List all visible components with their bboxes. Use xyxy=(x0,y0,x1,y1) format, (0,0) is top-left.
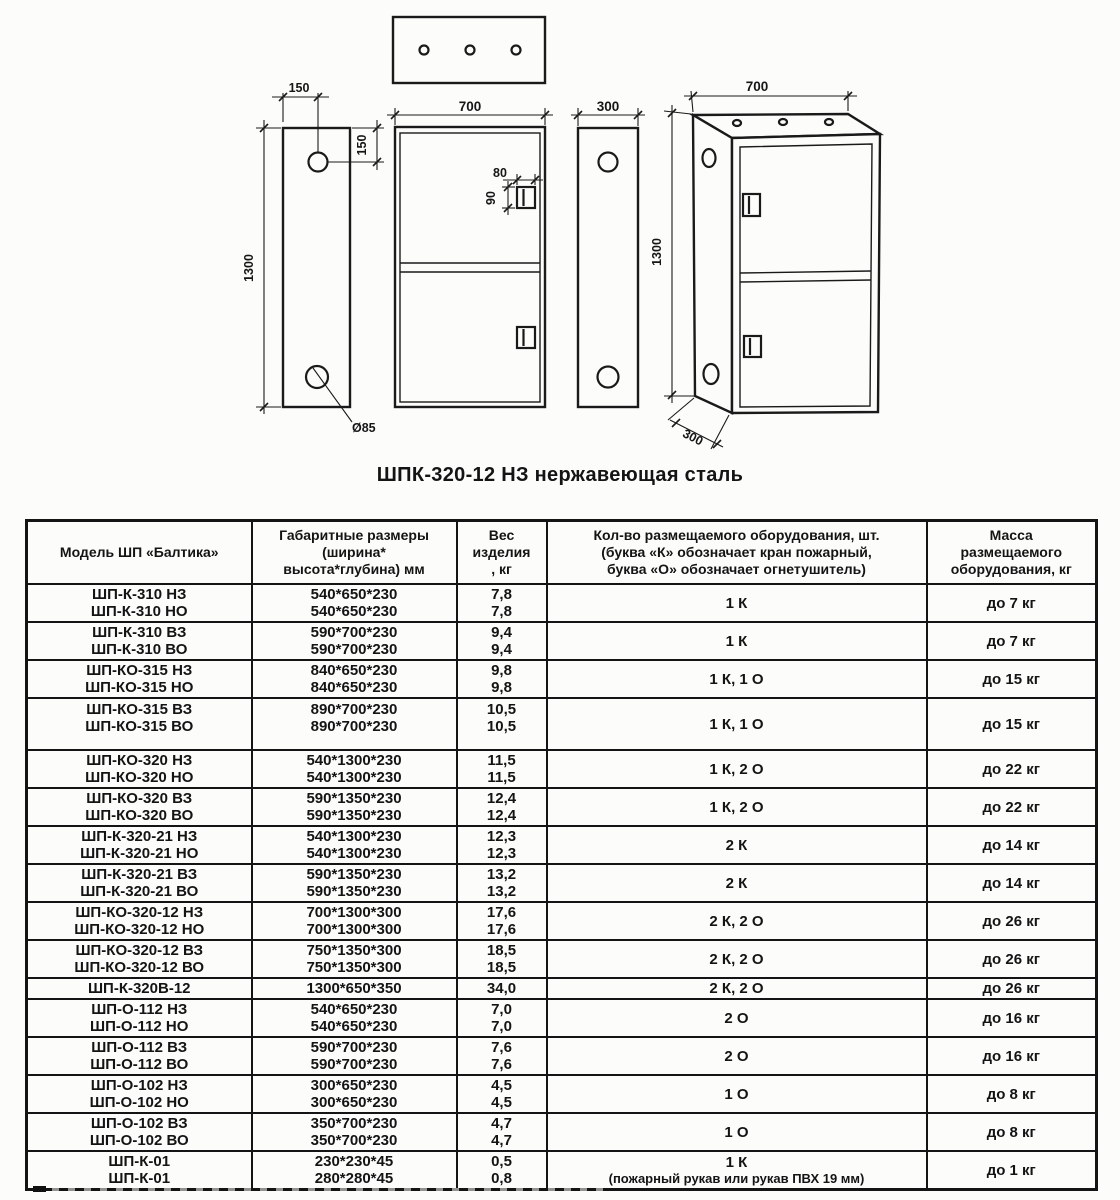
weight-value: 4,5 xyxy=(460,1077,544,1094)
c-size-cell: 890*700*230890*700*230 xyxy=(252,698,457,750)
model-name: ШП-КО-315 ВЗ xyxy=(30,701,249,718)
mass-value: до 26 кг xyxy=(930,951,1094,968)
size-value: 540*1300*230 xyxy=(255,845,454,862)
c-mass-cell: до 22 кг xyxy=(927,750,1097,788)
equipment-count: 1 К xyxy=(550,633,924,650)
c-equip-cell: 2 К, 2 О xyxy=(547,902,927,940)
size-value: 590*700*230 xyxy=(255,641,454,658)
weight-value: 10,5 xyxy=(460,701,544,718)
model-name: ШП-К-320-21 ВЗ xyxy=(30,866,249,883)
dim-side-depth: 300 xyxy=(597,99,620,114)
weight-value: 13,2 xyxy=(460,883,544,900)
model-name: ШП-КО-320-12 ВЗ xyxy=(30,942,249,959)
model-name: ШП-О-102 НЗ xyxy=(30,1077,249,1094)
c-model-cell: ШП-К-310 НЗШП-К-310 НО xyxy=(27,584,252,622)
model-name: ШП-О-112 ВЗ xyxy=(30,1039,249,1056)
size-value: 890*700*230 xyxy=(255,701,454,718)
size-value: 300*650*230 xyxy=(255,1094,454,1111)
weight-value: 12,4 xyxy=(460,807,544,824)
side-outline xyxy=(578,128,638,407)
mass-value: до 14 кг xyxy=(930,875,1094,892)
size-value: 590*700*230 xyxy=(255,624,454,641)
model-name: ШП-К-320В-12 xyxy=(30,980,249,997)
size-value: 590*1350*230 xyxy=(255,790,454,807)
equipment-count: 2 К xyxy=(550,875,924,892)
dim-iso-height: 1300 xyxy=(650,238,664,266)
model-name: ШП-К-320-21 НЗ xyxy=(30,828,249,845)
c-size-cell: 700*1300*300700*1300*300 xyxy=(252,902,457,940)
c-mass-cell: до 1 кг xyxy=(927,1151,1097,1190)
table-header-row: Модель ШП «Балтика» Габаритные размеры (… xyxy=(27,521,1097,585)
c-model-cell: ШП-КО-320-12 НЗШП-КО-320-12 НО xyxy=(27,902,252,940)
header-model: Модель ШП «Балтика» xyxy=(27,521,252,585)
c-mass-cell: до 15 кг xyxy=(927,698,1097,750)
size-value: 540*650*230 xyxy=(255,1001,454,1018)
c-mass-cell: до 15 кг xyxy=(927,660,1097,698)
c-mass-cell: до 7 кг xyxy=(927,584,1097,622)
weight-value: 7,0 xyxy=(460,1018,544,1035)
mass-value: до 8 кг xyxy=(930,1086,1094,1103)
equipment-count: 1 К, 2 О xyxy=(550,799,924,816)
size-value: 700*1300*300 xyxy=(255,904,454,921)
table-row: ШП-КО-315 ВЗШП-КО-315 ВО890*700*230890*7… xyxy=(27,698,1097,750)
model-name: ШП-О-102 НО xyxy=(30,1094,249,1111)
table-row: ШП-К-320-21 НЗШП-К-320-21 НО540*1300*230… xyxy=(27,826,1097,864)
mass-value: до 14 кг xyxy=(930,837,1094,854)
model-name: ШП-К-310 ВЗ xyxy=(30,624,249,641)
dim-iso-depth: 300 xyxy=(680,426,705,448)
c-size-cell: 540*1300*230540*1300*230 xyxy=(252,826,457,864)
dim-front-width: 700 xyxy=(459,99,482,114)
size-value: 590*1350*230 xyxy=(255,883,454,900)
iso-left-face xyxy=(693,115,732,413)
mass-value: до 22 кг xyxy=(930,799,1094,816)
c-size-cell: 590*1350*230590*1350*230 xyxy=(252,788,457,826)
weight-value: 11,5 xyxy=(460,769,544,786)
size-value: 350*700*230 xyxy=(255,1115,454,1132)
c-weight-cell: 10,510,5 xyxy=(457,698,547,750)
c-size-cell: 540*1300*230540*1300*230 xyxy=(252,750,457,788)
equipment-count: 2 К xyxy=(550,837,924,854)
c-size-cell: 350*700*230350*700*230 xyxy=(252,1113,457,1151)
model-name: ШП-О-102 ВЗ xyxy=(30,1115,249,1132)
equipment-count: 1 К, 1 О xyxy=(550,671,924,688)
c-weight-cell: 0,50,8 xyxy=(457,1151,547,1190)
left-panel-view: 150 150 1300 Ø85 xyxy=(242,81,384,435)
model-name: ШП-КО-315 НЗ xyxy=(30,662,249,679)
table-row: ШП-О-102 ВЗШП-О-102 ВО350*700*230350*700… xyxy=(27,1113,1097,1151)
c-model-cell: ШП-К-310 ВЗШП-К-310 ВО xyxy=(27,622,252,660)
size-value: 590*1350*230 xyxy=(255,866,454,883)
header-equipment: Кол-во размещаемого оборудования, шт. (б… xyxy=(547,521,927,585)
c-model-cell: ШП-КО-320 НЗШП-КО-320 НО xyxy=(27,750,252,788)
c-equip-cell: 2 К xyxy=(547,864,927,902)
c-weight-cell: 9,49,4 xyxy=(457,622,547,660)
c-size-cell: 300*650*230300*650*230 xyxy=(252,1075,457,1113)
equipment-count: 2 К, 2 О xyxy=(550,951,924,968)
model-name: ШП-К-320-21 НО xyxy=(30,845,249,862)
size-value: 350*700*230 xyxy=(255,1132,454,1149)
weight-value: 13,2 xyxy=(460,866,544,883)
weight-value: 7,8 xyxy=(460,603,544,620)
spec-table-body: ШП-К-310 НЗШП-К-310 НО540*650*230540*650… xyxy=(27,584,1097,1190)
c-size-cell: 840*650*230840*650*230 xyxy=(252,660,457,698)
mass-value: до 16 кг xyxy=(930,1048,1094,1065)
c-size-cell: 590*700*230590*700*230 xyxy=(252,1037,457,1075)
model-name: ШП-К-01 xyxy=(30,1170,249,1187)
weight-value: 18,5 xyxy=(460,942,544,959)
weight-value: 0,8 xyxy=(460,1170,544,1187)
dim-panel-width: 150 xyxy=(289,81,310,95)
weight-value: 4,5 xyxy=(460,1094,544,1111)
weight-value: 0,5 xyxy=(460,1153,544,1170)
c-model-cell: ШП-КО-320-12 ВЗШП-КО-320-12 ВО xyxy=(27,940,252,978)
model-name: ШП-КО-320-12 ВО xyxy=(30,959,249,976)
size-value: 540*650*230 xyxy=(255,586,454,603)
weight-value: 7,6 xyxy=(460,1039,544,1056)
header-weight: Вес изделия , кг xyxy=(457,521,547,585)
c-mass-cell: до 14 кг xyxy=(927,864,1097,902)
c-mass-cell: до 26 кг xyxy=(927,978,1097,999)
c-weight-cell: 7,87,8 xyxy=(457,584,547,622)
equipment-count: 2 К, 2 О xyxy=(550,980,924,997)
equipment-count: 1 О xyxy=(550,1124,924,1141)
table-row: ШП-О-112 НЗШП-О-112 НО540*650*230540*650… xyxy=(27,999,1097,1037)
cabinet-outline xyxy=(395,127,545,407)
c-size-cell: 590*700*230590*700*230 xyxy=(252,622,457,660)
c-equip-cell: 2 К xyxy=(547,826,927,864)
side-view: 300 xyxy=(571,99,645,407)
equipment-count: 2 О xyxy=(550,1048,924,1065)
c-equip-cell: 1 К, 1 О xyxy=(547,698,927,750)
c-mass-cell: до 8 кг xyxy=(927,1075,1097,1113)
c-model-cell: ШП-О-112 НЗШП-О-112 НО xyxy=(27,999,252,1037)
c-size-cell: 540*650*230540*650*230 xyxy=(252,584,457,622)
table-row: ШП-КО-320 НЗШП-КО-320 НО540*1300*230540*… xyxy=(27,750,1097,788)
spec-table: Модель ШП «Балтика» Габаритные размеры (… xyxy=(25,519,1098,1191)
size-value: 700*1300*300 xyxy=(255,921,454,938)
c-mass-cell: до 16 кг xyxy=(927,1037,1097,1075)
c-weight-cell: 18,518,5 xyxy=(457,940,547,978)
size-value: 540*650*230 xyxy=(255,603,454,620)
c-mass-cell: до 26 кг xyxy=(927,902,1097,940)
technical-drawing: 150 150 1300 Ø85 xyxy=(0,0,1120,505)
size-value: 840*650*230 xyxy=(255,662,454,679)
model-name: ШП-КО-315 ВО xyxy=(30,718,249,735)
weight-value: 9,4 xyxy=(460,624,544,641)
c-equip-cell: 1 К(пожарный рукав или рукав ПВХ 19 мм) xyxy=(547,1151,927,1190)
c-weight-cell: 34,0 xyxy=(457,978,547,999)
c-equip-cell: 2 К, 2 О xyxy=(547,940,927,978)
c-weight-cell: 4,74,7 xyxy=(457,1113,547,1151)
c-model-cell: ШП-К-01ШП-К-01 xyxy=(27,1151,252,1190)
weight-value: 12,4 xyxy=(460,790,544,807)
c-model-cell: ШП-О-112 ВЗШП-О-112 ВО xyxy=(27,1037,252,1075)
equipment-count: 2 О xyxy=(550,1010,924,1027)
mass-value: до 22 кг xyxy=(930,761,1094,778)
c-model-cell: ШП-К-320В-12 xyxy=(27,978,252,999)
size-value: 540*1300*230 xyxy=(255,828,454,845)
model-name: ШП-О-112 НО xyxy=(30,1018,249,1035)
model-name: ШП-КО-320 НО xyxy=(30,769,249,786)
model-name: ШП-К-01 xyxy=(30,1153,249,1170)
model-name: ШП-К-310 ВО xyxy=(30,641,249,658)
model-name: ШП-КО-320 ВЗ xyxy=(30,790,249,807)
weight-value: 9,8 xyxy=(460,662,544,679)
table-row: ШП-К-320-21 ВЗШП-К-320-21 ВО590*1350*230… xyxy=(27,864,1097,902)
plan-outline xyxy=(393,17,545,83)
model-name: ШП-КО-320 ВО xyxy=(30,807,249,824)
model-name: ШП-КО-320-12 НЗ xyxy=(30,904,249,921)
c-mass-cell: до 7 кг xyxy=(927,622,1097,660)
size-value: 590*700*230 xyxy=(255,1056,454,1073)
model-name: ШП-КО-320-12 НО xyxy=(30,921,249,938)
c-mass-cell: до 22 кг xyxy=(927,788,1097,826)
mass-value: до 26 кг xyxy=(930,980,1094,997)
c-size-cell: 230*230*45280*280*45 xyxy=(252,1151,457,1190)
c-model-cell: ШП-О-102 НЗШП-О-102 НО xyxy=(27,1075,252,1113)
size-value: 590*1350*230 xyxy=(255,807,454,824)
weight-value: 17,6 xyxy=(460,921,544,938)
table-row: ШП-О-112 ВЗШП-О-112 ВО590*700*230590*700… xyxy=(27,1037,1097,1075)
c-equip-cell: 1 К, 2 О xyxy=(547,788,927,826)
mass-value: до 15 кг xyxy=(930,671,1094,688)
c-equip-cell: 2 О xyxy=(547,1037,927,1075)
weight-value: 17,6 xyxy=(460,904,544,921)
table-row: ШП-К-320В-121300*650*35034,02 К, 2 Одо 2… xyxy=(27,978,1097,999)
header-equipment-mass: Масса размещаемого оборудования, кг xyxy=(927,521,1097,585)
c-mass-cell: до 26 кг xyxy=(927,940,1097,978)
mass-value: до 26 кг xyxy=(930,913,1094,930)
table-row: ШП-К-310 НЗШП-К-310 НО540*650*230540*650… xyxy=(27,584,1097,622)
c-equip-cell: 1 О xyxy=(547,1075,927,1113)
size-value: 750*1350*300 xyxy=(255,942,454,959)
c-model-cell: ШП-КО-315 ВЗШП-КО-315 ВО xyxy=(27,698,252,750)
c-equip-cell: 2 К, 2 О xyxy=(547,978,927,999)
model-name: ШП-О-102 ВО xyxy=(30,1132,249,1149)
c-equip-cell: 1 К, 1 О xyxy=(547,660,927,698)
weight-value: 12,3 xyxy=(460,845,544,862)
c-mass-cell: до 8 кг xyxy=(927,1113,1097,1151)
mass-value: до 15 кг xyxy=(930,716,1094,733)
table-row: ШП-КО-320 ВЗШП-КО-320 ВО590*1350*230590*… xyxy=(27,788,1097,826)
model-name: ШП-К-310 НО xyxy=(30,603,249,620)
c-model-cell: ШП-КО-320 ВЗШП-КО-320 ВО xyxy=(27,788,252,826)
c-weight-cell: 7,67,6 xyxy=(457,1037,547,1075)
weight-value: 7,8 xyxy=(460,586,544,603)
c-model-cell: ШП-О-102 ВЗШП-О-102 ВО xyxy=(27,1113,252,1151)
header-dimensions: Габаритные размеры (ширина* высота*глуби… xyxy=(252,521,457,585)
weight-value: 11,5 xyxy=(460,752,544,769)
c-mass-cell: до 14 кг xyxy=(927,826,1097,864)
dim-panel-height: 1300 xyxy=(242,254,256,282)
c-weight-cell: 12,412,4 xyxy=(457,788,547,826)
c-weight-cell: 9,89,8 xyxy=(457,660,547,698)
equipment-count: 1 К, 2 О xyxy=(550,761,924,778)
size-value: 540*1300*230 xyxy=(255,769,454,786)
c-size-cell: 1300*650*350 xyxy=(252,978,457,999)
c-weight-cell: 17,617,6 xyxy=(457,902,547,940)
table-row: ШП-КО-320-12 НЗШП-КО-320-12 НО700*1300*3… xyxy=(27,902,1097,940)
c-weight-cell: 11,511,5 xyxy=(457,750,547,788)
weight-value: 7,0 xyxy=(460,1001,544,1018)
size-value: 840*650*230 xyxy=(255,679,454,696)
weight-value: 9,8 xyxy=(460,679,544,696)
drawing-caption: ШПК-320-12 НЗ нержавеющая сталь xyxy=(0,464,1120,487)
weight-value: 4,7 xyxy=(460,1115,544,1132)
equipment-count: 1 К, 1 О xyxy=(550,716,924,733)
c-equip-cell: 1 К, 2 О xyxy=(547,750,927,788)
c-mass-cell: до 16 кг xyxy=(927,999,1097,1037)
c-model-cell: ШП-КО-315 НЗШП-КО-315 НО xyxy=(27,660,252,698)
size-value: 540*1300*230 xyxy=(255,752,454,769)
table-row: ШП-КО-315 НЗШП-КО-315 НО840*650*230840*6… xyxy=(27,660,1097,698)
model-name: ШП-О-112 НЗ xyxy=(30,1001,249,1018)
c-equip-cell: 1 К xyxy=(547,622,927,660)
c-equip-cell: 1 О xyxy=(547,1113,927,1151)
c-size-cell: 590*1350*230590*1350*230 xyxy=(252,864,457,902)
weight-value: 7,6 xyxy=(460,1056,544,1073)
model-name: ШП-КО-315 НО xyxy=(30,679,249,696)
c-model-cell: ШП-К-320-21 ВЗШП-К-320-21 ВО xyxy=(27,864,252,902)
equipment-count: 1 К xyxy=(550,595,924,612)
cutoff-text-fragment xyxy=(33,1186,46,1192)
model-name: ШП-К-310 НЗ xyxy=(30,586,249,603)
dim-hole-offset: 150 xyxy=(355,135,369,156)
c-model-cell: ШП-К-320-21 НЗШП-К-320-21 НО xyxy=(27,826,252,864)
table-row: ШП-К-310 ВЗШП-К-310 ВО590*700*230590*700… xyxy=(27,622,1097,660)
plan-view xyxy=(393,17,545,83)
front-view: 700 80 90 xyxy=(387,99,553,407)
size-value: 1300*650*350 xyxy=(255,980,454,997)
mass-value: до 16 кг xyxy=(930,1010,1094,1027)
model-name: ШП-К-320-21 ВО xyxy=(30,883,249,900)
equipment-count: 2 К, 2 О xyxy=(550,913,924,930)
dim-handle-width: 80 xyxy=(493,166,507,180)
mass-value: до 7 кг xyxy=(930,595,1094,612)
size-value: 590*700*230 xyxy=(255,1039,454,1056)
c-size-cell: 540*650*230540*650*230 xyxy=(252,999,457,1037)
model-name: ШП-КО-320 НЗ xyxy=(30,752,249,769)
mass-value: до 7 кг xyxy=(930,633,1094,650)
cutoff-text-smudge xyxy=(52,1188,612,1191)
axonometric-view: 700 1300 300 xyxy=(650,79,880,449)
size-value: 300*650*230 xyxy=(255,1077,454,1094)
c-weight-cell: 4,54,5 xyxy=(457,1075,547,1113)
table-row: ШП-КО-320-12 ВЗШП-КО-320-12 ВО750*1350*3… xyxy=(27,940,1097,978)
c-weight-cell: 13,213,2 xyxy=(457,864,547,902)
equipment-count: 1 К xyxy=(550,1154,924,1171)
weight-value: 4,7 xyxy=(460,1132,544,1149)
equipment-note: (пожарный рукав или рукав ПВХ 19 мм) xyxy=(550,1171,924,1186)
dim-handle-height: 90 xyxy=(484,191,498,205)
table-row: ШП-О-102 НЗШП-О-102 НО300*650*230300*650… xyxy=(27,1075,1097,1113)
c-equip-cell: 1 К xyxy=(547,584,927,622)
mass-value: до 1 кг xyxy=(930,1162,1094,1179)
weight-value: 18,5 xyxy=(460,959,544,976)
iso-front-face xyxy=(732,134,880,413)
size-value: 890*700*230 xyxy=(255,718,454,735)
mass-value: до 8 кг xyxy=(930,1124,1094,1141)
c-weight-cell: 12,312,3 xyxy=(457,826,547,864)
weight-value: 34,0 xyxy=(460,980,544,997)
table-row: ШП-К-01ШП-К-01230*230*45280*280*450,50,8… xyxy=(27,1151,1097,1190)
size-value: 540*650*230 xyxy=(255,1018,454,1035)
weight-value: 12,3 xyxy=(460,828,544,845)
weight-value: 10,5 xyxy=(460,718,544,735)
weight-value: 9,4 xyxy=(460,641,544,658)
size-value: 280*280*45 xyxy=(255,1170,454,1187)
dim-hole-diameter: Ø85 xyxy=(352,421,376,435)
size-value: 750*1350*300 xyxy=(255,959,454,976)
equipment-count: 1 О xyxy=(550,1086,924,1103)
dim-iso-width: 700 xyxy=(746,79,769,94)
model-name: ШП-О-112 ВО xyxy=(30,1056,249,1073)
c-size-cell: 750*1350*300750*1350*300 xyxy=(252,940,457,978)
size-value: 230*230*45 xyxy=(255,1153,454,1170)
c-equip-cell: 2 О xyxy=(547,999,927,1037)
c-weight-cell: 7,07,0 xyxy=(457,999,547,1037)
